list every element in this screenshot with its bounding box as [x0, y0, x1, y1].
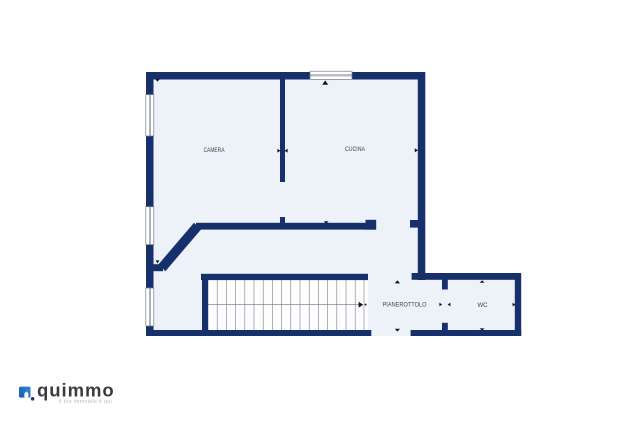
svg-text:CAMERA: CAMERA: [204, 147, 226, 154]
svg-text:quimmo: quimmo: [37, 380, 115, 401]
svg-text:WC: WC: [477, 302, 488, 309]
svg-text:CUCINA: CUCINA: [345, 146, 366, 153]
svg-text:PIANEROTTOLO: PIANEROTTOLO: [383, 302, 427, 309]
svg-text:il tuo immobile è qui: il tuo immobile è qui: [59, 399, 112, 405]
